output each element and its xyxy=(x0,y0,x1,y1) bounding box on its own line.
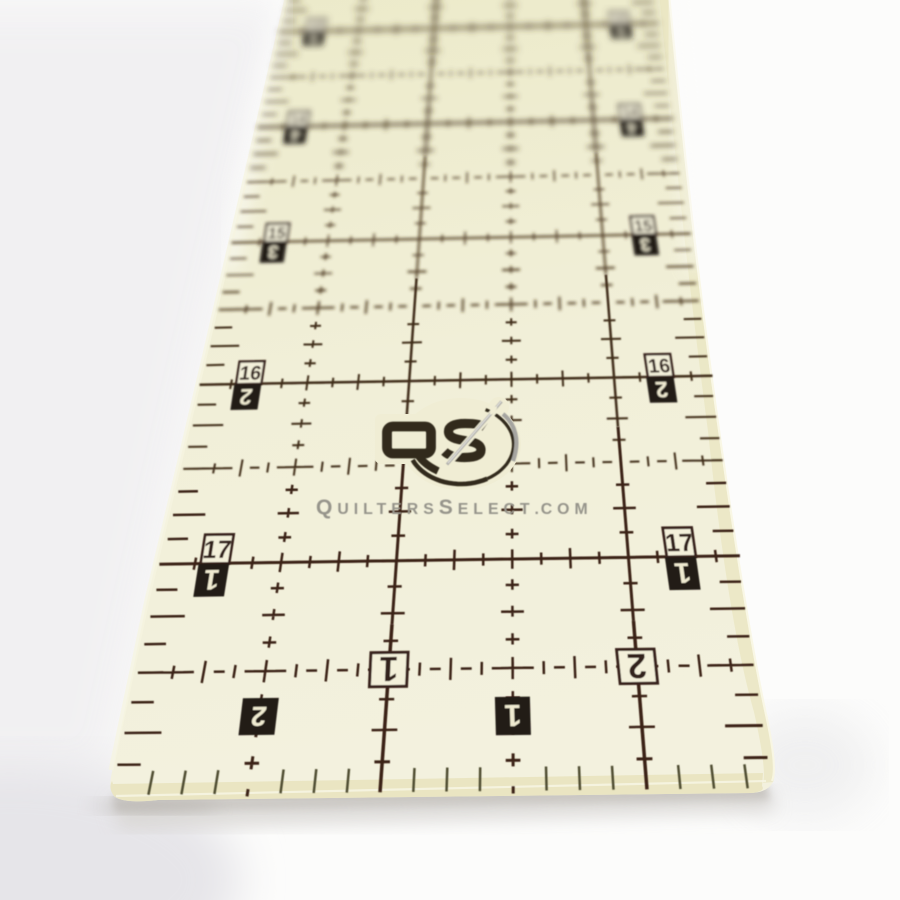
svg-text:2: 2 xyxy=(625,646,649,685)
svg-text:13: 13 xyxy=(309,20,323,32)
svg-text:17: 17 xyxy=(663,529,695,557)
svg-text:1: 1 xyxy=(378,649,399,688)
svg-text:15: 15 xyxy=(267,225,287,242)
svg-text:13: 13 xyxy=(613,13,627,25)
svg-text:15: 15 xyxy=(633,218,653,235)
svg-text:16: 16 xyxy=(647,355,672,377)
svg-text:16: 16 xyxy=(238,363,263,385)
svg-text:1: 1 xyxy=(504,698,522,733)
svg-text:17: 17 xyxy=(201,536,233,564)
